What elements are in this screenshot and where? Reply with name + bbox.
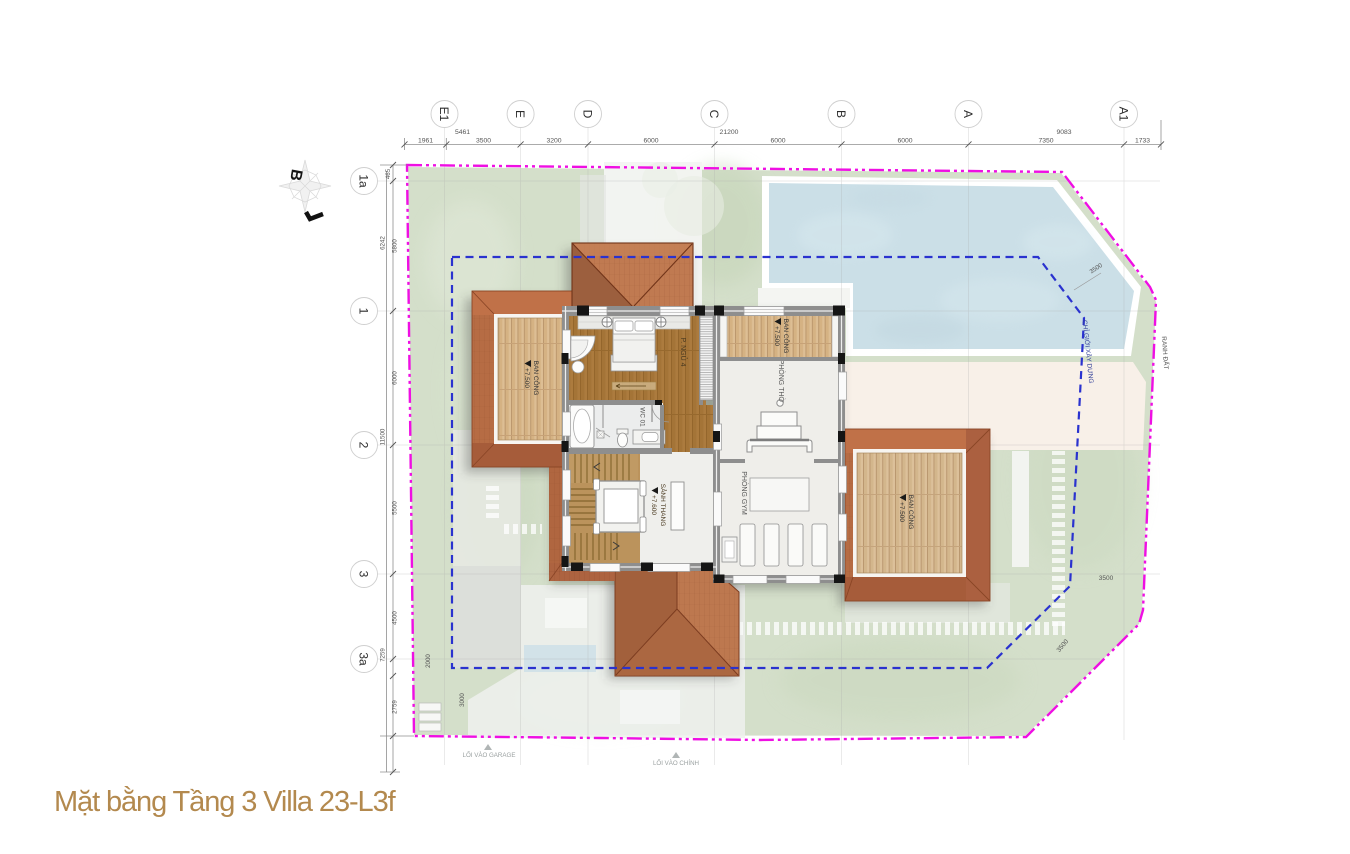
- svg-text:RANH ĐẤT: RANH ĐẤT: [1160, 336, 1172, 370]
- svg-text:LỐI VÀO CHÍNH: LỐI VÀO CHÍNH: [653, 760, 699, 767]
- svg-text:6000: 6000: [897, 138, 912, 145]
- svg-text:B: B: [286, 168, 305, 182]
- svg-text:6000: 6000: [770, 138, 785, 145]
- svg-text:3500: 3500: [476, 138, 491, 145]
- svg-text:E1: E1: [437, 107, 451, 122]
- svg-text:PHÒNG THỜ: PHÒNG THỜ: [777, 360, 786, 403]
- svg-text:2: 2: [357, 442, 371, 449]
- svg-text:4500: 4500: [392, 611, 399, 625]
- svg-text:Mặt bằng Tầng 3 Villa 23-L3f: Mặt bằng Tầng 3 Villa 23-L3f: [54, 785, 397, 818]
- svg-text:BAN CÔNG: BAN CÔNG: [907, 495, 916, 530]
- svg-text:6000: 6000: [392, 371, 399, 385]
- svg-text:3: 3: [357, 571, 371, 578]
- svg-text:1: 1: [357, 308, 371, 315]
- svg-text:SẢNH THANG: SẢNH THANG: [659, 484, 668, 527]
- svg-text:C: C: [707, 110, 721, 119]
- svg-text:3200: 3200: [546, 138, 561, 145]
- svg-text:+7.500: +7.500: [523, 368, 530, 388]
- svg-text:7350: 7350: [1038, 138, 1053, 145]
- svg-text:PHÒNG GYM: PHÒNG GYM: [740, 471, 749, 515]
- svg-text:3500: 3500: [1099, 575, 1114, 582]
- svg-text:9083: 9083: [1056, 129, 1071, 136]
- svg-text:465: 465: [385, 168, 392, 179]
- svg-text:2759: 2759: [392, 700, 399, 714]
- svg-text:7259: 7259: [380, 648, 387, 662]
- svg-text:BAN CÔNG: BAN CÔNG: [532, 361, 541, 396]
- svg-text:1733: 1733: [1135, 138, 1150, 145]
- svg-text:+7.600: +7.600: [650, 495, 657, 515]
- svg-text:1a: 1a: [357, 174, 371, 188]
- svg-text:+7.500: +7.500: [898, 502, 905, 522]
- svg-text:11500: 11500: [380, 428, 387, 445]
- svg-text:A: A: [961, 110, 975, 118]
- svg-text:5461: 5461: [455, 129, 470, 136]
- svg-text:3a: 3a: [357, 652, 371, 666]
- svg-text:5500: 5500: [392, 501, 399, 515]
- svg-text:+7.500: +7.500: [773, 326, 780, 346]
- svg-text:6242: 6242: [380, 236, 387, 250]
- svg-text:WC 01: WC 01: [639, 407, 646, 427]
- svg-text:P. NGỦ 4: P. NGỦ 4: [679, 337, 688, 366]
- svg-text:LỐI VÀO GARAGE: LỐI VÀO GARAGE: [463, 752, 516, 759]
- svg-text:A1: A1: [1117, 107, 1131, 122]
- svg-text:21200: 21200: [720, 129, 739, 136]
- svg-text:1961: 1961: [418, 138, 433, 145]
- svg-text:E: E: [513, 110, 527, 118]
- svg-text:3000: 3000: [459, 693, 466, 707]
- svg-text:BAN CÔNG: BAN CÔNG: [782, 319, 791, 354]
- svg-text:6000: 6000: [643, 138, 658, 145]
- svg-text:5800: 5800: [392, 239, 399, 253]
- svg-text:2000: 2000: [425, 654, 432, 668]
- svg-text:B: B: [834, 110, 848, 118]
- svg-text:D: D: [581, 110, 595, 119]
